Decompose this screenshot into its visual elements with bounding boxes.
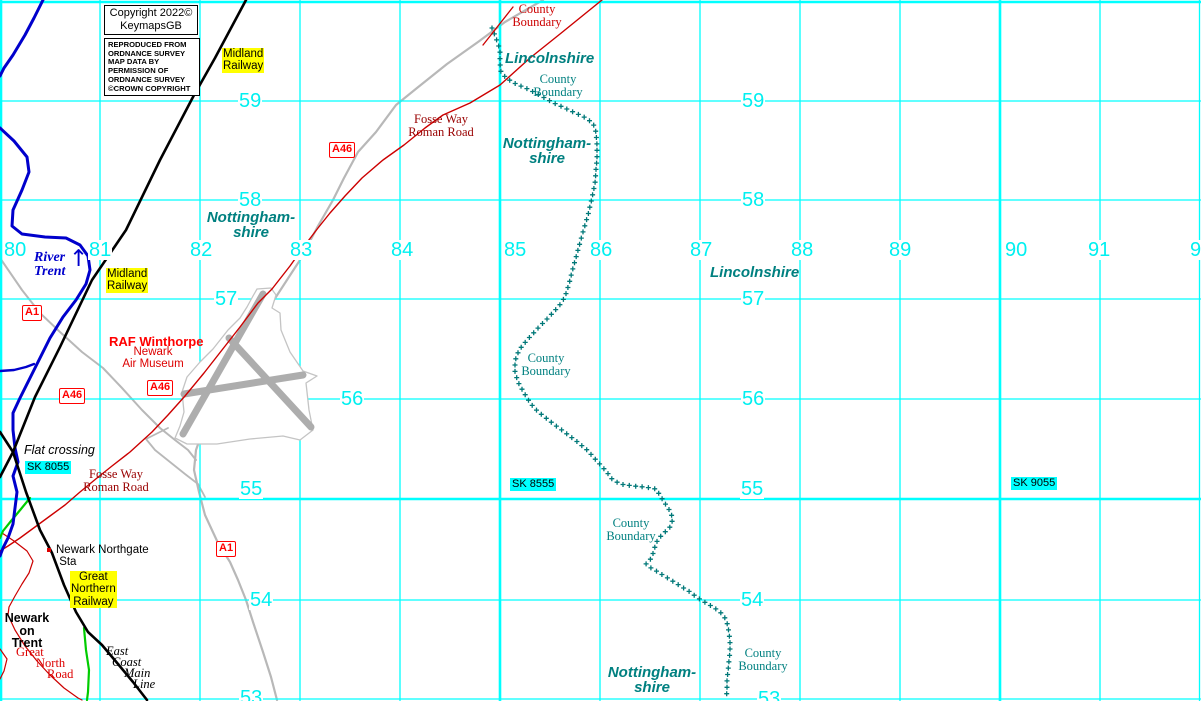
grid-label-54-right: 54 (740, 590, 764, 610)
sk-8055-ref: SK 8055 (25, 461, 71, 474)
sk-8555-ref: SK 8555 (510, 478, 556, 491)
grid-label-56-right: 56 (741, 389, 765, 409)
great-north-road-label-3: Road (47, 668, 73, 681)
fosse-way-label-south: Fosse Way Roman Road (80, 468, 152, 494)
grid-label-55-left: 55 (239, 479, 263, 499)
grid-label-88: 88 (790, 240, 814, 260)
grid-label-58-right: 58 (741, 190, 765, 210)
grid-label-81: 81 (88, 240, 112, 260)
grid-label-56-left: 56 (340, 389, 364, 409)
grid-label-91: 91 (1087, 240, 1111, 260)
grid-label-89: 89 (888, 240, 912, 260)
a46-box-airfield: A46 (147, 380, 173, 396)
grid-label-85: 85 (503, 240, 527, 260)
river-branch (0, 364, 34, 371)
grid-label-58-left: 58 (238, 190, 262, 210)
newark-on-trent-label: Newark on Trent (4, 612, 50, 650)
map-viewport: Midland RailwayCounty BoundaryLincolnshi… (0, 0, 1201, 701)
grid-label-57-right: 57 (741, 289, 765, 309)
county-boundary-label-4: County Boundary (601, 517, 661, 543)
county-boundary-label-3: County Boundary (516, 352, 576, 378)
grid-label-84: 84 (390, 240, 414, 260)
nottinghamshire-label-west: Nottingham- shire (203, 210, 299, 240)
county-boundary-label-top: County Boundary (509, 3, 565, 29)
road-green-2 (84, 628, 89, 700)
newark-northgate-sta-label: Newark Northgate Sta (56, 545, 149, 568)
grid-label-86: 86 (589, 240, 613, 260)
river-trent-label: River Trent (34, 251, 65, 279)
midland-railway-label-mid: Midland Railway (106, 268, 148, 293)
east-coast-main-line-label-4: Line (133, 678, 155, 691)
raf-winthorpe-airfield (175, 288, 317, 444)
grid-label-59-left: 59 (238, 91, 262, 111)
grid-label-55-right: 55 (740, 479, 764, 499)
midland-railway-label-north: Midland Railway (222, 48, 264, 73)
grid-label-53-left: 53 (239, 688, 263, 701)
county-boundary-label-2: County Boundary (528, 73, 588, 99)
grid-label-87: 87 (689, 240, 713, 260)
grid-label-57-left: 57 (214, 289, 238, 309)
grid-label-53-right: 53 (757, 689, 781, 701)
grid-label-92: 92 (1189, 240, 1201, 260)
river-flow-arrow: ↑ (69, 248, 88, 271)
grid-label-80: 80 (3, 240, 27, 260)
sk-9055-ref: SK 9055 (1011, 477, 1057, 490)
lincolnshire-label-east: Lincolnshire (710, 265, 799, 280)
grid-label-59-right: 59 (741, 91, 765, 111)
great-northern-railway-label: Great Northern Railway (70, 571, 117, 608)
a1-box-south: A1 (216, 541, 236, 557)
ordnance-survey-notice: REPRODUCED FROM ORDNANCE SURVEY MAP DATA… (104, 38, 200, 96)
newark-northgate-station-marker (47, 548, 51, 552)
river-trent-main (0, 128, 90, 556)
grid-label-82: 82 (189, 240, 213, 260)
copyright-notice: Copyright 2022© KeymapsGB (104, 5, 198, 35)
a46-box-mid: A46 (59, 388, 85, 404)
river-trent-upper (0, 0, 43, 76)
lincolnshire-label-north: Lincolnshire (505, 51, 594, 66)
a46-box-north: A46 (329, 142, 355, 158)
newark-air-museum-label: Newark Air Museum (120, 347, 186, 370)
flat-crossing-label: Flat crossing (24, 444, 95, 457)
fosse-way-label-north: Fosse Way Roman Road (405, 113, 477, 139)
nottinghamshire-label-south: Nottingham- shire (605, 665, 699, 695)
a1-box-north: A1 (22, 305, 42, 321)
county-boundary-label-5: County Boundary (733, 647, 793, 673)
grid-label-90: 90 (1004, 240, 1028, 260)
nottinghamshire-label-north: Nottingham- shire (500, 136, 594, 166)
grid-label-83: 83 (289, 240, 313, 260)
grid-label-54-left: 54 (249, 590, 273, 610)
